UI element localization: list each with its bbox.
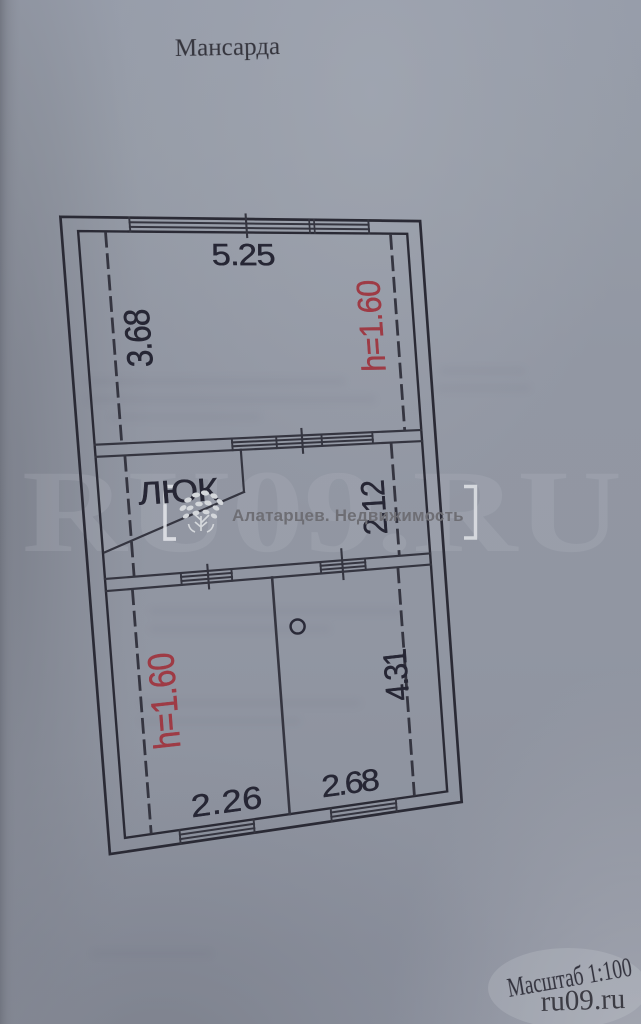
svg-text:4.31: 4.31 [375, 648, 416, 703]
svg-text:h=1.60: h=1.60 [349, 280, 393, 372]
svg-text:Мансарда: Мансарда [175, 33, 281, 62]
svg-text:ru09.ru: ru09.ru [540, 983, 626, 1018]
svg-text:Алатарцев. Недвижимость: Алатарцев. Недвижимость [232, 506, 464, 525]
svg-text:3.68: 3.68 [117, 309, 162, 367]
svg-text:5.25: 5.25 [210, 237, 276, 272]
svg-text:h=1.60: h=1.60 [141, 651, 189, 751]
